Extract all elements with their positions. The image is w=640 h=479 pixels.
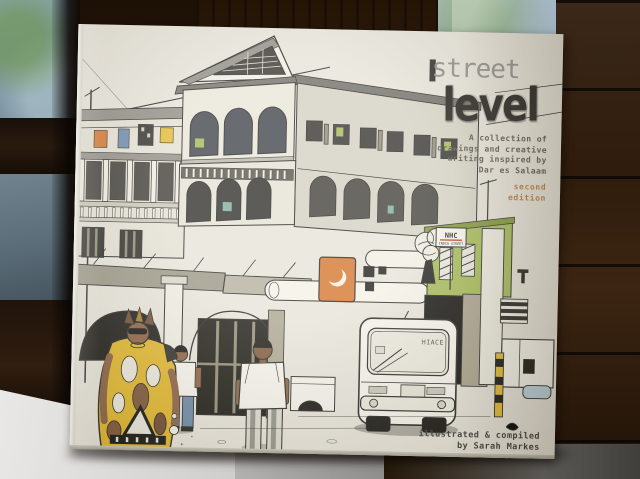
street-kiosk (290, 376, 335, 411)
book-subtitle: A collection of drawings and creative wr… (437, 133, 547, 177)
wood-planks-right (556, 0, 640, 479)
edition-line: second (508, 181, 546, 193)
street-sign-text: INDIA STREET (439, 242, 464, 247)
pediment-building (172, 34, 298, 229)
van: HIACE (354, 310, 461, 437)
van-model-label: HIACE (422, 338, 444, 346)
edition-line: edition (508, 192, 546, 204)
edition-label: second edition (508, 181, 546, 204)
nhc-sign-text: NHC (445, 232, 458, 240)
left-building (72, 105, 187, 259)
right-side-objects (478, 228, 556, 431)
book-title-word2: level (442, 82, 538, 128)
book-cover: NHC INDIA STREET HIACE (70, 24, 564, 459)
credits-label: illustrated & compiled by Sarah Markes (418, 429, 540, 454)
